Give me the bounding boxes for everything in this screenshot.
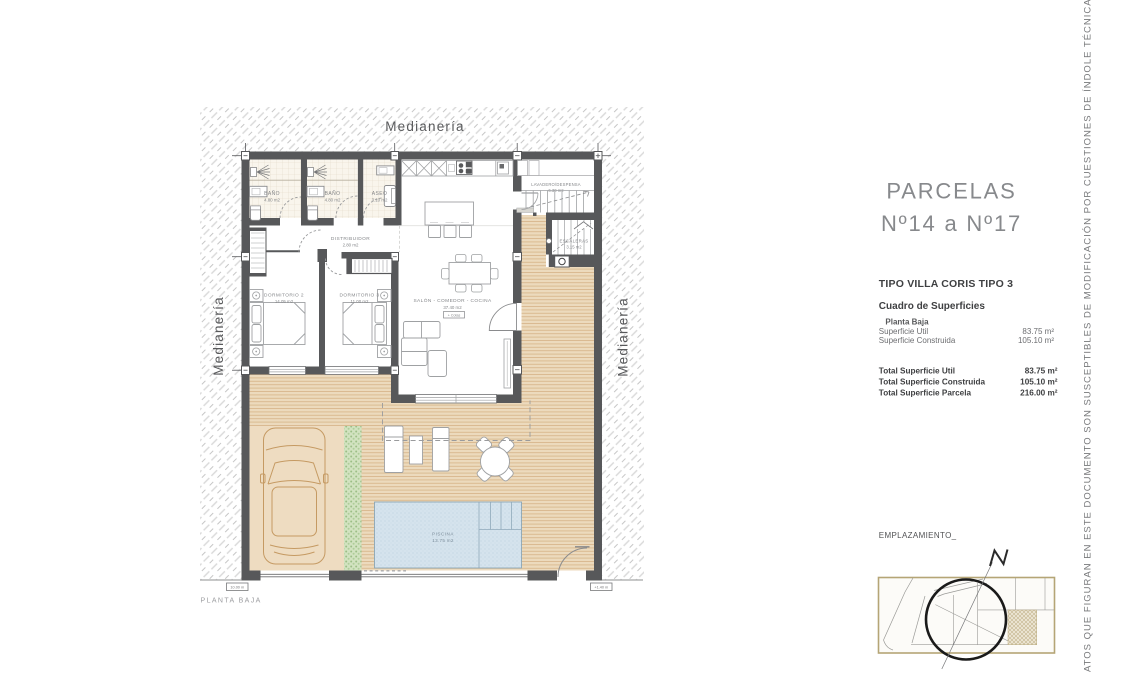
svg-text:ATOS QUE FIGURAN EN ESTE DOCUM: ATOS QUE FIGURAN EN ESTE DOCUMENTO SON S…: [1083, 0, 1094, 672]
svg-text:+ Cotas: + Cotas: [448, 313, 461, 317]
svg-text:TIPO VILLA CORIS TIPO 3: TIPO VILLA CORIS TIPO 3: [879, 278, 1013, 290]
svg-text:Superficie Construida: Superficie Construida: [879, 336, 956, 345]
svg-text:37.40 m2: 37.40 m2: [443, 305, 462, 310]
svg-text:216.00 m²: 216.00 m²: [1020, 389, 1058, 398]
svg-text:SALÓN - COMEDOR - COCINA: SALÓN - COMEDOR - COCINA: [413, 297, 491, 304]
svg-text:3.15 m2: 3.15 m2: [566, 245, 582, 250]
svg-text:Total Superficie Construida: Total Superficie Construida: [879, 378, 986, 387]
svg-text:DORMITORIO 3: DORMITORIO 3: [340, 293, 380, 299]
svg-text:Planta Baja: Planta Baja: [885, 318, 929, 327]
svg-text:PLANTA BAJA: PLANTA BAJA: [201, 598, 262, 605]
svg-text:14.05 m2: 14.05 m2: [275, 299, 294, 304]
svg-text:Cuadro de Superficies: Cuadro de Superficies: [879, 301, 986, 312]
svg-text:105.10 m²: 105.10 m²: [1018, 336, 1054, 345]
svg-text:4.80 m2: 4.80 m2: [264, 198, 280, 203]
svg-text:83.75 m²: 83.75 m²: [1025, 367, 1058, 376]
svg-text:2.80 m2: 2.80 m2: [343, 243, 359, 248]
svg-text:83.75 m²: 83.75 m²: [1022, 327, 1054, 336]
svg-text:Medianería: Medianería: [616, 297, 631, 377]
svg-text:DISTRIBUIDOR: DISTRIBUIDOR: [331, 236, 370, 242]
svg-text:Superficie Util: Superficie Util: [879, 327, 929, 336]
svg-text:PARCELAS: PARCELAS: [886, 179, 1016, 204]
svg-text:10.00 m: 10.00 m: [230, 586, 244, 590]
svg-text:Medianería: Medianería: [385, 119, 465, 134]
svg-text:DORMITORIO 2: DORMITORIO 2: [264, 293, 304, 299]
svg-text:BAÑO: BAÑO: [264, 190, 280, 197]
svg-text:4.80 m2: 4.80 m2: [325, 198, 341, 203]
svg-text:13.75 m2: 13.75 m2: [432, 538, 454, 543]
svg-text:BAÑO: BAÑO: [325, 190, 341, 197]
svg-text:+1.40 m: +1.40 m: [594, 586, 608, 590]
svg-text:Nº14 a Nº17: Nº14 a Nº17: [881, 211, 1022, 236]
svg-text:Total Superficie Parcela: Total Superficie Parcela: [879, 389, 972, 398]
svg-text:EMPLAZAMIENTO_: EMPLAZAMIENTO_: [879, 531, 957, 540]
svg-text:Medianería: Medianería: [211, 296, 226, 376]
svg-text:LAVADERO/DESPENSA: LAVADERO/DESPENSA: [531, 182, 581, 187]
svg-text:PISCINA: PISCINA: [432, 532, 454, 537]
svg-text:11.00 m2: 11.00 m2: [351, 299, 370, 304]
svg-text:ASEO: ASEO: [372, 191, 388, 197]
svg-text:Total Superficie Util: Total Superficie Util: [879, 367, 955, 376]
svg-text:105.10 m²: 105.10 m²: [1020, 378, 1058, 387]
svg-text:ESCALERAS: ESCALERAS: [559, 239, 588, 244]
